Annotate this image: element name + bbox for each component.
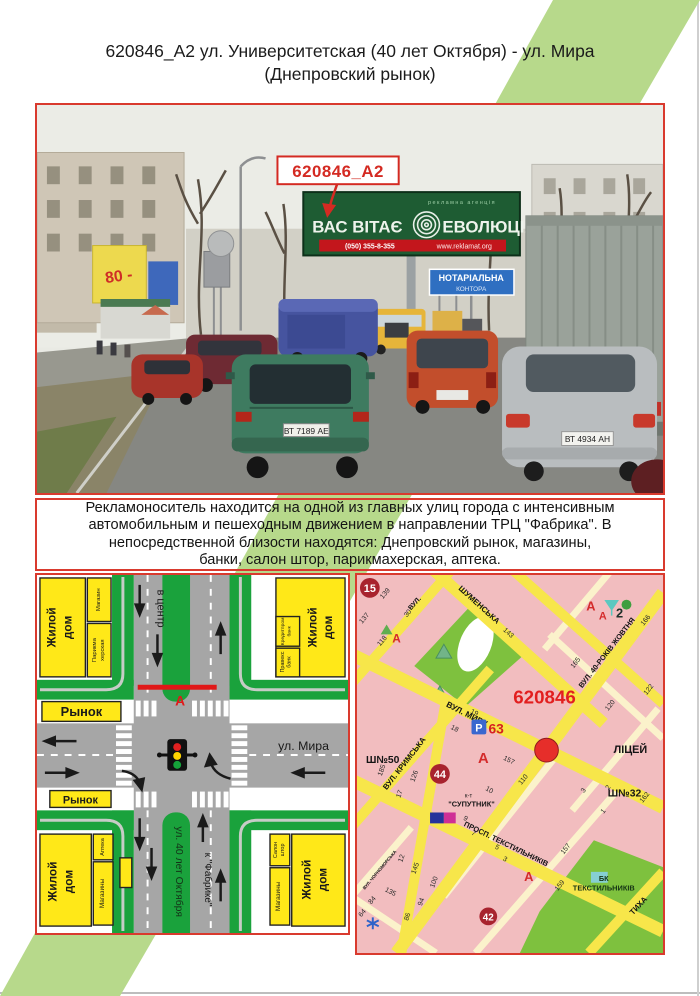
building-bl-label1: Жилой bbox=[46, 862, 60, 903]
market-south-label: Рынок bbox=[63, 794, 99, 806]
document-page: 620846_A2 ул. Университетская (40 лет Ок… bbox=[0, 0, 700, 996]
title-line-1: 620846_A2 ул. Университетская (40 лет Ок… bbox=[0, 40, 700, 63]
hairdresser-label2: херская bbox=[100, 639, 106, 661]
street-photo: рекламна агенція ВАС ВІТАЄ ЕВОЛЮЦІЯ (050… bbox=[35, 103, 665, 495]
building-br-label2: дом bbox=[315, 868, 329, 891]
map-drawing: ШУМЕНСЬКА ВУЛ. МИРУ ВУЛ. КРИМСЬКА ВУЛ. 4… bbox=[357, 575, 663, 953]
notary-sign-line2: КОНТОРА bbox=[456, 286, 487, 293]
building-tl-label2: дом bbox=[61, 616, 75, 639]
silver-car-plate-text: ВТ 4934 АН bbox=[565, 434, 610, 444]
page-title: 620846_A2 ул. Университетская (40 лет Ок… bbox=[0, 40, 700, 86]
pharmacy-icon: А bbox=[392, 631, 401, 645]
billboard-website: www.reklamat.org bbox=[436, 244, 492, 251]
description-line-2: автомобильным и пешеходным движением в н… bbox=[37, 517, 663, 535]
kiosk bbox=[120, 858, 132, 888]
parking-marker: Р 63 bbox=[472, 719, 505, 736]
page-right-edge bbox=[697, 0, 699, 996]
circle-42: 42 bbox=[483, 912, 494, 923]
billboard-location-dot bbox=[535, 738, 559, 762]
legend-squares bbox=[430, 812, 456, 823]
poi-number-2: 2 bbox=[616, 606, 623, 621]
building-tr-label1: Жилой bbox=[305, 607, 319, 648]
hairdresser-label1: Парикма bbox=[92, 637, 98, 662]
parking-63: 63 bbox=[488, 720, 504, 736]
description-line-3: непосредственной близости находятся: Дне… bbox=[37, 535, 663, 553]
pharmacy-icon: А bbox=[586, 599, 595, 614]
round-sign-back bbox=[208, 231, 234, 257]
scheme-drawing: А Жилой дом Магазин Парикма херская bbox=[37, 575, 348, 933]
title-line-2: (Днепровский рынок) bbox=[0, 63, 700, 86]
circle-44: 44 bbox=[434, 769, 446, 781]
city-map: ШУМЕНСЬКА ВУЛ. МИРУ ВУЛ. КРИМСЬКА ВУЛ. 4… bbox=[355, 573, 665, 955]
billboard-tagline: рекламна агенція bbox=[428, 200, 496, 206]
curtains-label1: Салон bbox=[273, 842, 279, 858]
sign-back bbox=[204, 251, 230, 287]
red-compact-car bbox=[131, 354, 203, 404]
photo-scene: рекламна агенція ВАС ВІТАЄ ЕВОЛЮЦІЯ (050… bbox=[37, 105, 663, 493]
parking-p: Р bbox=[475, 722, 482, 734]
building-br-label1: Жилой bbox=[299, 860, 313, 901]
circle-15: 15 bbox=[364, 583, 376, 595]
to-fabrika-label: к "Фабрике" bbox=[202, 853, 213, 907]
pharmacy-label: Аптека bbox=[100, 837, 106, 855]
billboard-text-left: ВАС ВІТАЄ bbox=[312, 218, 402, 237]
mira-street-label: ул. Мира bbox=[278, 739, 329, 753]
callout-label: 620846_A2 bbox=[292, 162, 384, 181]
billboard-phone: (050) 355-8-355 bbox=[345, 244, 395, 251]
market-north-label: Рынок bbox=[61, 704, 103, 719]
bk-label-1: БК bbox=[599, 874, 609, 883]
school-32-label: Ш№32 bbox=[608, 789, 642, 800]
october-street-label: ул. 40 лет Октября bbox=[173, 826, 185, 917]
pharmacy-icon: А bbox=[524, 869, 533, 884]
billboard-position-line bbox=[138, 685, 217, 690]
shops-br-label: Магазины bbox=[275, 881, 282, 911]
intersection-scheme: А Жилой дом Магазин Парикма херская bbox=[35, 573, 350, 935]
shops-bl-label: Магазины bbox=[99, 878, 106, 908]
blue-square-icon bbox=[430, 812, 444, 823]
description-line-4: банки, салон штор, парикмахерская, аптек… bbox=[37, 552, 663, 570]
lyceum-label: ЛІЦЕЙ bbox=[614, 743, 648, 756]
curtains-label2: штор bbox=[280, 844, 286, 857]
green-car-plate-text: ВТ 7189 АЕ bbox=[284, 426, 329, 436]
building-tl-label1: Жилой bbox=[45, 607, 59, 648]
billboard-marker-letter: А bbox=[175, 693, 185, 709]
notary-sign-line1: НОТАРІАЛЬНА bbox=[439, 273, 505, 283]
pharmacy-icon: А bbox=[478, 751, 489, 767]
building-tr-label2: дом bbox=[321, 616, 335, 639]
bank1-label2: банк bbox=[287, 625, 293, 636]
to-center-label: в центр bbox=[154, 590, 166, 628]
bank2-label2: банк bbox=[287, 656, 293, 668]
map-billboard-id: 620846 bbox=[513, 687, 576, 708]
billboard-text-right: ЕВОЛЮЦІЯ bbox=[442, 218, 536, 237]
orange-hatchback bbox=[407, 331, 498, 414]
building-bl-label2: дом bbox=[62, 870, 76, 893]
bk-label-2: ТЕКСТИЛЬНИКІВ bbox=[573, 884, 636, 893]
description-line-1: Рекламоноситель находится на одной из гл… bbox=[37, 500, 663, 518]
shop-label: Магазин bbox=[96, 588, 102, 611]
silver-sedan: ВТ 4934 АН bbox=[502, 347, 657, 482]
magenta-square-icon bbox=[444, 812, 456, 823]
cinema-label: "СУПУТНИК" bbox=[448, 800, 495, 809]
pharmacy-icon: А bbox=[599, 611, 607, 623]
school-50-label: Ш№50 bbox=[366, 755, 400, 766]
description-box: Рекламоноситель находится на одной из гл… bbox=[35, 498, 665, 571]
bank2-label1: Правекс bbox=[280, 651, 286, 672]
bank1-label1: Кредитпром bbox=[280, 617, 286, 645]
blue-kiosk-sign bbox=[148, 261, 178, 305]
